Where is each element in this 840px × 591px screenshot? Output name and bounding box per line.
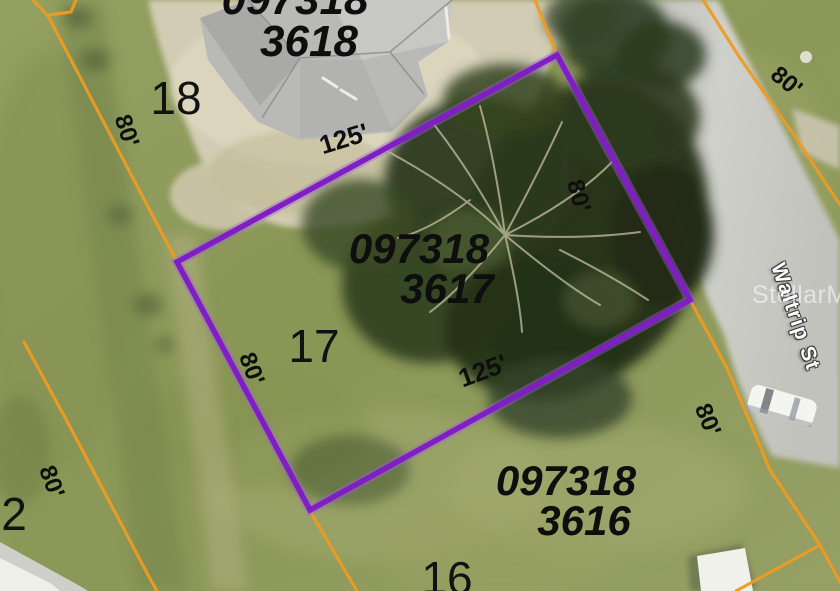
parcel-apn-3618-line2: 3618 (260, 17, 358, 67)
lot-number-2: 2 (1, 487, 27, 541)
lot-number-17: 17 (288, 319, 339, 373)
roadside-object (800, 51, 812, 63)
parcel-apn-3616-line2: 3616 (537, 497, 630, 545)
lot-number-16: 16 (421, 551, 472, 591)
lot-number-18: 18 (150, 71, 201, 125)
aerial-parcel-map: 097318 3618 18 097318 3617 17 097318 361… (0, 0, 840, 591)
mls-watermark: StellarMLS (752, 281, 840, 310)
parcel-apn-3617-line2: 3617 (400, 265, 493, 313)
